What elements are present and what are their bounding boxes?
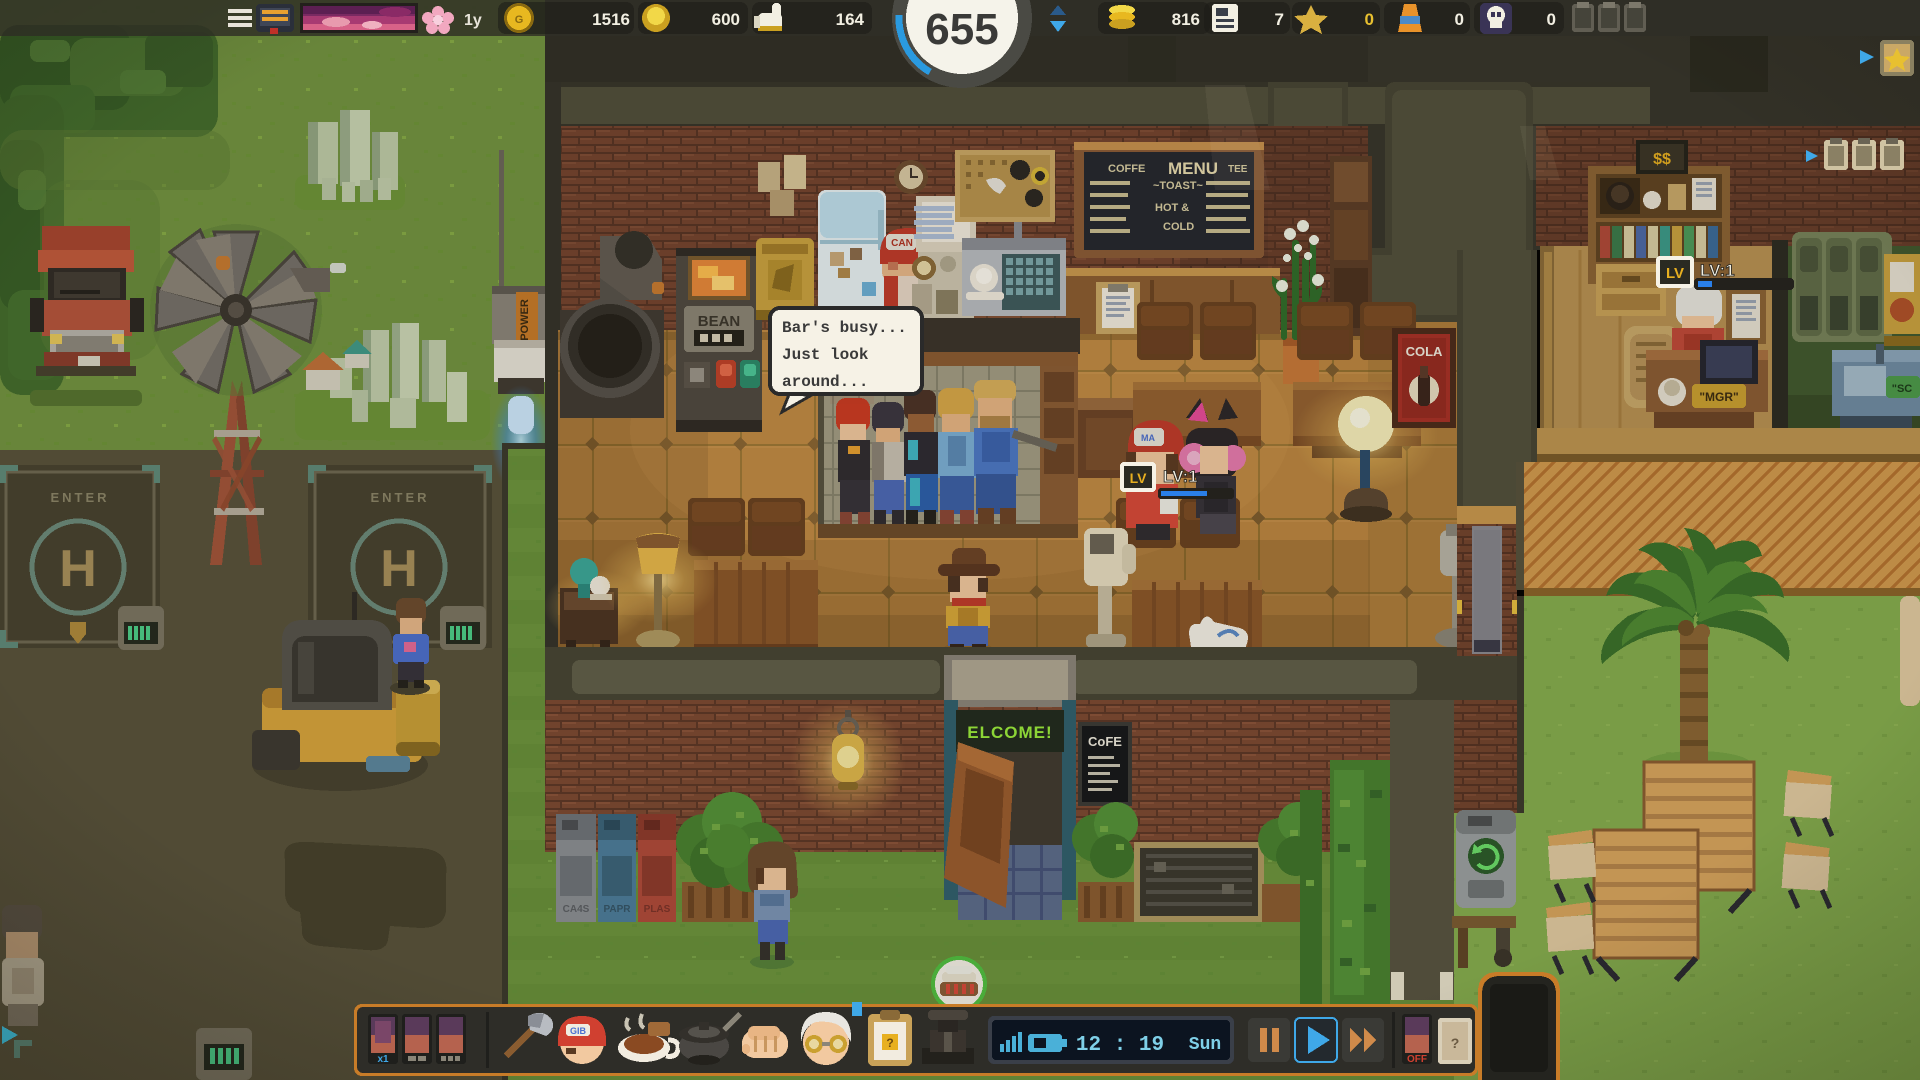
svg-text:1516: 1516: [592, 10, 630, 29]
svg-text:LV:1: LV:1: [1700, 261, 1735, 280]
svg-text:?: ?: [886, 1036, 893, 1050]
svg-text:816: 816: [1172, 10, 1200, 29]
svg-text:?: ?: [1451, 1035, 1460, 1051]
svg-text:LV: LV: [1666, 265, 1684, 282]
svg-text:0: 0: [1547, 10, 1556, 29]
svg-text:655: 655: [925, 5, 998, 54]
svg-text:GIB: GIB: [570, 1026, 587, 1036]
svg-text:Sun: Sun: [1189, 1035, 1221, 1055]
svg-text:1y: 1y: [464, 12, 482, 29]
svg-text:Just look: Just look: [782, 346, 869, 364]
svg-text:0: 0: [1365, 10, 1374, 29]
svg-text:12 : 19: 12 : 19: [1076, 1034, 1164, 1057]
svg-text:LV: LV: [1130, 470, 1148, 486]
svg-text:LV:1: LV:1: [1163, 467, 1198, 486]
svg-text:OFF: OFF: [1407, 1054, 1427, 1065]
svg-text:600: 600: [712, 10, 740, 29]
svg-text:7: 7: [1275, 10, 1284, 29]
svg-text:Bar's busy...: Bar's busy...: [782, 319, 907, 337]
svg-text:around...: around...: [782, 373, 868, 391]
svg-text:x1: x1: [377, 1054, 389, 1065]
svg-text:G: G: [515, 14, 524, 26]
svg-text:0: 0: [1455, 10, 1464, 29]
svg-text:164: 164: [836, 10, 865, 29]
